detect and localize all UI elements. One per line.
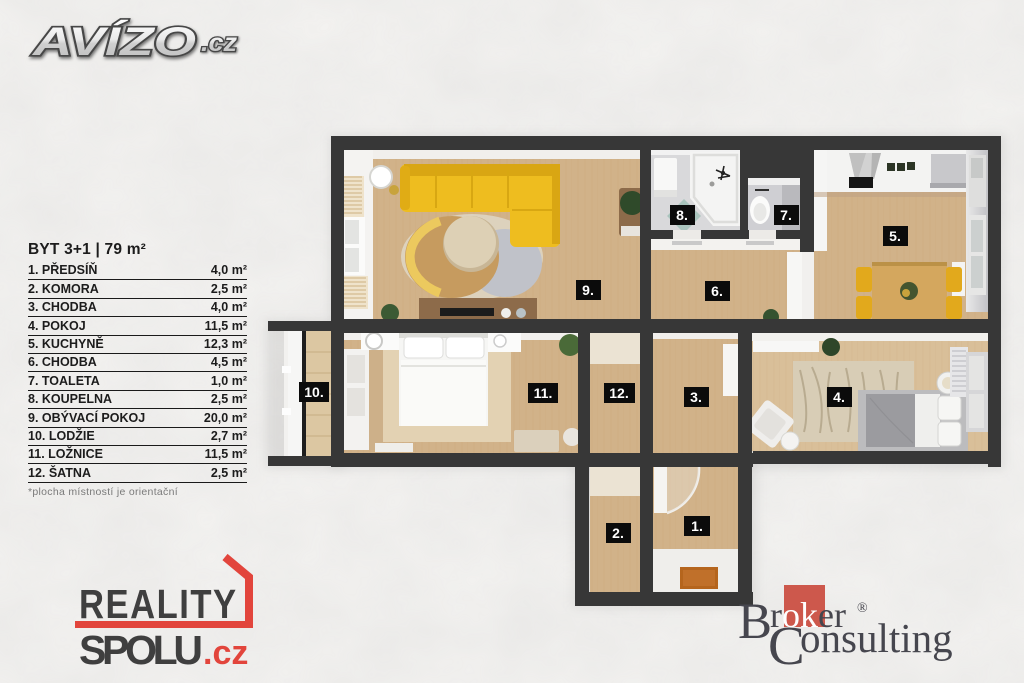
svg-text:10.: 10.: [304, 384, 323, 400]
svg-text:7.: 7.: [780, 207, 792, 223]
svg-text:5.: 5.: [889, 228, 901, 244]
svg-text:9.: 9.: [582, 282, 594, 298]
svg-text:onsulting: onsulting: [800, 615, 953, 661]
svg-text:12.: 12.: [609, 385, 628, 401]
svg-text:B: B: [738, 594, 772, 650]
svg-text:1.: 1.: [691, 518, 703, 534]
svg-text:3.: 3.: [690, 389, 702, 405]
svg-text:SPOLU: SPOLU: [79, 627, 203, 673]
svg-text:2.: 2.: [612, 525, 624, 541]
svg-text:8.: 8.: [676, 207, 688, 223]
svg-text:REALITY: REALITY: [79, 582, 236, 627]
svg-text:®: ®: [857, 601, 868, 616]
svg-text:11.: 11.: [534, 385, 553, 401]
svg-text:4.: 4.: [833, 389, 845, 405]
svg-text:6.: 6.: [711, 283, 723, 299]
svg-text:.cz: .cz: [203, 634, 248, 672]
